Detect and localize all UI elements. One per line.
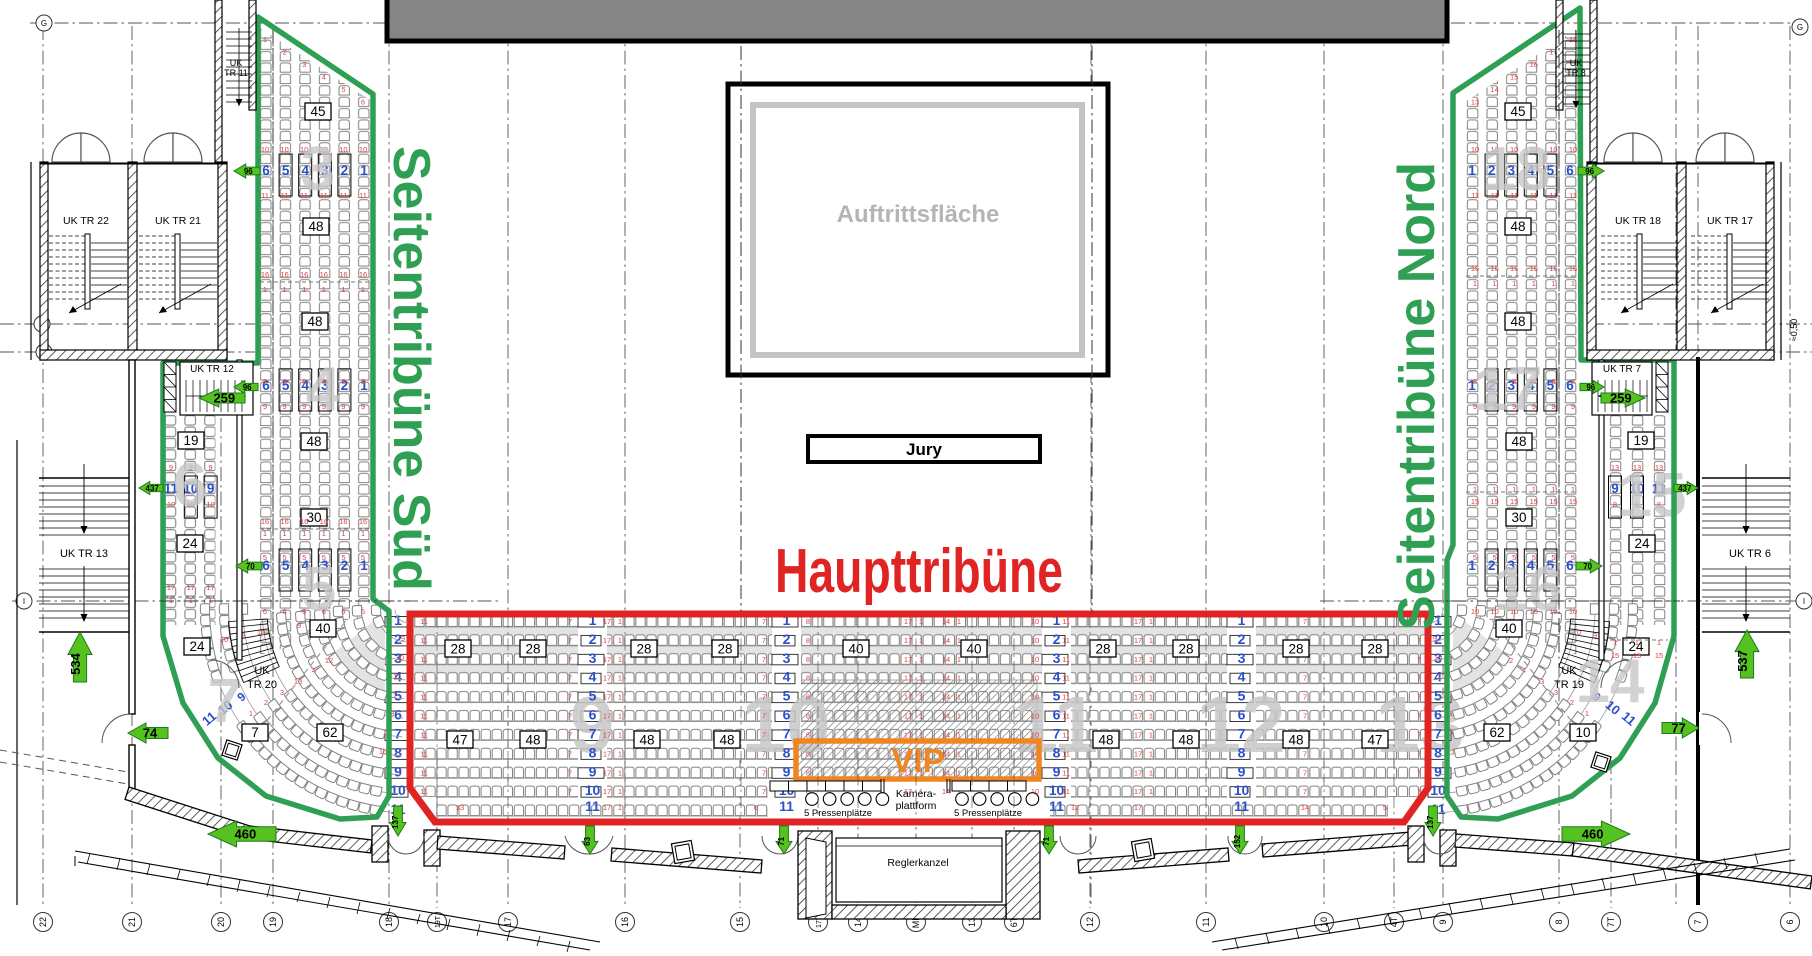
svg-text:70: 70: [246, 562, 255, 571]
svg-text:1: 1: [1473, 279, 1477, 288]
svg-text:11: 11: [1049, 798, 1064, 814]
svg-text:11: 11: [420, 768, 428, 777]
svg-text:UK: UK: [1570, 58, 1583, 68]
svg-text:6: 6: [341, 607, 345, 616]
svg-text:1: 1: [919, 617, 923, 626]
svg-text:UK TR 6: UK TR 6: [1729, 548, 1771, 560]
svg-text:19: 19: [268, 917, 278, 927]
svg-text:70: 70: [1583, 562, 1592, 571]
svg-text:48: 48: [306, 434, 321, 449]
svg-text:10: 10: [1430, 782, 1446, 798]
svg-text:16: 16: [261, 270, 269, 279]
svg-text:5: 5: [1383, 803, 1387, 812]
svg-text:9: 9: [361, 402, 365, 411]
svg-text:6: 6: [754, 803, 758, 812]
svg-text:1: 1: [341, 285, 345, 294]
svg-text:VIP: VIP: [891, 742, 944, 779]
svg-text:10: 10: [1234, 782, 1250, 798]
svg-text:1: 1: [302, 529, 306, 538]
svg-text:6: 6: [783, 707, 791, 723]
svg-text:1: 1: [618, 617, 622, 626]
svg-text:7: 7: [589, 725, 597, 741]
svg-text:19T: 19T: [435, 915, 442, 928]
svg-text:7: 7: [1303, 768, 1307, 777]
svg-text:63: 63: [583, 836, 592, 845]
svg-text:UK TR 7: UK TR 7: [1603, 364, 1642, 375]
svg-text:7: 7: [762, 674, 766, 683]
svg-text:17: 17: [603, 712, 611, 721]
svg-text:48: 48: [1511, 434, 1526, 449]
svg-text:7: 7: [394, 725, 402, 741]
svg-text:1: 1: [919, 693, 923, 702]
svg-text:19: 19: [183, 433, 198, 448]
svg-text:11: 11: [281, 191, 289, 200]
svg-text:9: 9: [209, 463, 213, 472]
svg-text:11: 11: [420, 655, 428, 664]
svg-text:11: 11: [359, 191, 367, 200]
svg-text:259: 259: [213, 391, 235, 406]
svg-text:11: 11: [1234, 798, 1249, 814]
svg-text:28: 28: [1095, 642, 1110, 657]
svg-text:1: 1: [361, 529, 365, 538]
svg-text:10: 10: [220, 635, 228, 644]
svg-text:152: 152: [1233, 834, 1242, 848]
svg-text:1: 1: [1532, 485, 1536, 494]
svg-text:10: 10: [1575, 725, 1590, 740]
svg-text:2: 2: [1053, 631, 1061, 647]
svg-text:13: 13: [294, 677, 302, 686]
svg-text:9: 9: [589, 763, 597, 779]
svg-text:1: 1: [919, 674, 923, 683]
svg-text:16: 16: [359, 517, 367, 526]
svg-text:9: 9: [1438, 919, 1448, 924]
svg-text:17: 17: [1134, 712, 1142, 721]
svg-text:10: 10: [1031, 674, 1039, 683]
svg-text:1: 1: [1512, 279, 1516, 288]
svg-text:534: 534: [68, 652, 83, 674]
svg-text:17: 17: [603, 803, 611, 812]
svg-text:9: 9: [1238, 763, 1246, 779]
svg-text:3: 3: [589, 650, 597, 666]
svg-text:7: 7: [762, 712, 766, 721]
svg-text:7: 7: [762, 787, 766, 796]
svg-text:7: 7: [1417, 636, 1421, 645]
svg-text:45: 45: [1510, 104, 1525, 119]
svg-text:1: 1: [283, 285, 287, 294]
svg-text:40: 40: [848, 642, 863, 657]
svg-text:11: 11: [1062, 655, 1070, 664]
svg-text:11: 11: [1550, 191, 1558, 200]
svg-text:6: 6: [263, 607, 267, 616]
svg-text:4: 4: [783, 669, 791, 685]
svg-text:5: 5: [283, 553, 287, 562]
svg-text:I: I: [1803, 597, 1805, 606]
svg-text:16: 16: [1530, 264, 1538, 273]
svg-text:8: 8: [1551, 377, 1555, 386]
svg-text:3: 3: [1053, 650, 1061, 666]
svg-text:9: 9: [1551, 402, 1555, 411]
svg-text:1: 1: [1149, 617, 1153, 626]
svg-text:14: 14: [942, 636, 950, 645]
svg-text:1: 1: [1613, 638, 1617, 647]
svg-text:4: 4: [589, 669, 597, 685]
svg-text:9: 9: [341, 402, 345, 411]
svg-text:16: 16: [1494, 555, 1563, 624]
svg-text:1: 1: [919, 655, 923, 664]
svg-text:1: 1: [1468, 163, 1476, 178]
svg-text:6: 6: [589, 707, 597, 723]
svg-text:8: 8: [806, 617, 810, 626]
svg-text:11: 11: [779, 798, 794, 814]
svg-text:10: 10: [1471, 145, 1479, 154]
svg-text:7: 7: [1417, 712, 1421, 721]
svg-text:13: 13: [456, 803, 464, 812]
svg-text:1: 1: [618, 730, 622, 739]
svg-text:17: 17: [904, 636, 912, 645]
svg-text:6: 6: [173, 451, 207, 520]
svg-text:14: 14: [1301, 803, 1309, 812]
svg-text:11: 11: [420, 636, 428, 645]
svg-text:6: 6: [1053, 707, 1061, 723]
svg-text:5 Pressenplätze: 5 Pressenplätze: [954, 808, 1022, 819]
svg-text:15: 15: [1549, 497, 1557, 506]
svg-text:17: 17: [1474, 355, 1543, 424]
svg-text:40: 40: [966, 642, 981, 657]
svg-text:16: 16: [1530, 60, 1538, 69]
svg-text:1: 1: [957, 674, 961, 683]
svg-text:11: 11: [1062, 712, 1070, 721]
svg-text:20: 20: [216, 917, 226, 927]
svg-text:30: 30: [1511, 510, 1526, 525]
svg-text:1: 1: [1149, 636, 1153, 645]
svg-text:17: 17: [603, 617, 611, 626]
svg-text:17: 17: [603, 693, 611, 702]
svg-text:77: 77: [1671, 721, 1685, 736]
svg-text:14: 14: [942, 712, 950, 721]
svg-text:16: 16: [320, 270, 328, 279]
svg-text:8: 8: [589, 744, 597, 760]
svg-text:3: 3: [1238, 650, 1246, 666]
svg-text:7: 7: [1417, 655, 1421, 664]
svg-text:UK TR 18: UK TR 18: [1615, 215, 1661, 227]
svg-text:22: 22: [38, 917, 48, 927]
svg-text:G: G: [41, 19, 47, 28]
svg-text:7: 7: [762, 730, 766, 739]
svg-text:UK: UK: [230, 58, 243, 68]
svg-text:14: 14: [1576, 647, 1645, 716]
svg-text:UK: UK: [254, 665, 270, 677]
svg-text:10: 10: [1569, 607, 1577, 616]
svg-text:28: 28: [450, 642, 465, 657]
svg-text:11: 11: [420, 749, 428, 758]
svg-text:3: 3: [302, 60, 306, 69]
svg-text:7: 7: [762, 749, 766, 758]
svg-text:10: 10: [280, 145, 288, 154]
svg-text:8: 8: [341, 377, 345, 386]
svg-text:7: 7: [762, 693, 766, 702]
svg-text:2: 2: [1570, 698, 1574, 707]
svg-text:11: 11: [420, 617, 428, 626]
svg-text:14: 14: [942, 693, 950, 702]
svg-text:1: 1: [302, 285, 306, 294]
svg-text:18: 18: [384, 917, 394, 927]
svg-text:7: 7: [568, 730, 572, 739]
svg-text:11: 11: [420, 712, 428, 721]
svg-text:1: 1: [919, 636, 923, 645]
svg-text:TR 11: TR 11: [224, 68, 248, 78]
svg-text:71: 71: [1042, 836, 1051, 845]
svg-text:15: 15: [1655, 651, 1663, 660]
svg-text:1: 1: [618, 693, 622, 702]
svg-text:11: 11: [585, 798, 600, 814]
svg-text:1: 1: [1149, 674, 1153, 683]
svg-text:7: 7: [1238, 725, 1246, 741]
svg-text:8: 8: [1571, 377, 1575, 386]
svg-text:48: 48: [1288, 733, 1303, 748]
svg-text:8: 8: [263, 377, 267, 386]
svg-text:1: 1: [1149, 749, 1153, 758]
svg-text:1: 1: [1571, 279, 1575, 288]
svg-text:2: 2: [589, 631, 597, 647]
svg-text:5: 5: [341, 85, 345, 94]
svg-text:1: 1: [1657, 638, 1661, 647]
svg-text:11: 11: [1062, 787, 1070, 796]
svg-text:11: 11: [1062, 617, 1070, 626]
svg-text:1: 1: [618, 749, 622, 758]
svg-text:2: 2: [341, 163, 349, 178]
svg-text:16: 16: [1510, 264, 1518, 273]
svg-text:11: 11: [261, 191, 269, 200]
svg-text:16: 16: [1490, 264, 1498, 273]
svg-text:7: 7: [1417, 749, 1421, 758]
svg-text:11: 11: [1471, 191, 1479, 200]
svg-text:8: 8: [1434, 744, 1442, 760]
svg-text:7: 7: [1434, 725, 1442, 741]
svg-text:17: 17: [187, 583, 195, 592]
svg-text:≈0,50: ≈0,50: [1789, 319, 1799, 341]
svg-text:11: 11: [1062, 693, 1070, 702]
svg-text:74: 74: [143, 726, 158, 741]
svg-text:7: 7: [1303, 693, 1307, 702]
svg-text:10: 10: [585, 782, 601, 798]
svg-text:9: 9: [207, 481, 215, 496]
svg-text:10: 10: [261, 145, 269, 154]
svg-text:17: 17: [1134, 768, 1142, 777]
svg-text:UK TR 17: UK TR 17: [1707, 215, 1753, 227]
svg-text:47: 47: [1367, 733, 1382, 748]
svg-text:11: 11: [1062, 636, 1070, 645]
svg-text:1: 1: [1149, 787, 1153, 796]
svg-text:96: 96: [243, 383, 252, 392]
svg-text:8: 8: [806, 712, 810, 721]
svg-text:10: 10: [359, 145, 367, 154]
svg-text:48: 48: [525, 733, 540, 748]
svg-text:28: 28: [1367, 642, 1382, 657]
svg-text:7: 7: [1417, 768, 1421, 777]
svg-text:28: 28: [1178, 642, 1193, 657]
svg-text:10: 10: [1031, 730, 1039, 739]
svg-text:71: 71: [777, 836, 786, 845]
svg-text:17: 17: [603, 655, 611, 664]
svg-text:7: 7: [568, 693, 572, 702]
svg-text:48: 48: [1178, 733, 1193, 748]
svg-text:11: 11: [420, 787, 428, 796]
svg-text:15: 15: [1510, 73, 1518, 82]
svg-text:17: 17: [1134, 803, 1142, 812]
svg-text:1: 1: [1149, 730, 1153, 739]
svg-text:11: 11: [420, 674, 428, 683]
svg-text:15: 15: [379, 747, 387, 756]
svg-text:5: 5: [282, 163, 290, 178]
svg-text:16: 16: [261, 517, 269, 526]
svg-text:15: 15: [1569, 497, 1577, 506]
svg-text:1: 1: [1635, 638, 1639, 647]
svg-text:1: 1: [341, 529, 345, 538]
svg-text:1: 1: [618, 674, 622, 683]
svg-text:18: 18: [1482, 135, 1551, 204]
svg-text:UK TR 21: UK TR 21: [155, 215, 201, 227]
svg-text:17: 17: [206, 583, 214, 592]
svg-text:7: 7: [568, 655, 572, 664]
svg-text:5: 5: [783, 688, 791, 704]
svg-text:10: 10: [257, 628, 265, 637]
svg-text:6: 6: [1238, 707, 1246, 723]
svg-text:11: 11: [420, 693, 428, 702]
svg-text:6: 6: [1434, 707, 1442, 723]
svg-text:15: 15: [735, 917, 745, 927]
svg-text:96: 96: [244, 167, 253, 176]
svg-text:17: 17: [603, 787, 611, 796]
svg-text:9: 9: [401, 634, 405, 643]
svg-text:24: 24: [1634, 536, 1650, 551]
svg-text:5: 5: [589, 688, 597, 704]
svg-text:7T: 7T: [1606, 916, 1616, 927]
svg-text:11: 11: [393, 672, 401, 681]
svg-text:12: 12: [1071, 803, 1079, 812]
svg-text:7: 7: [762, 655, 766, 664]
svg-text:1: 1: [618, 712, 622, 721]
svg-text:5 Pressenplätze: 5 Pressenplätze: [804, 808, 872, 819]
svg-text:7: 7: [568, 768, 572, 777]
svg-text:537: 537: [1735, 650, 1750, 672]
svg-text:1: 1: [283, 529, 287, 538]
svg-text:28: 28: [636, 642, 651, 657]
svg-text:7: 7: [1693, 919, 1703, 924]
svg-text:1: 1: [1532, 279, 1536, 288]
svg-text:15: 15: [1471, 497, 1479, 506]
svg-text:24: 24: [182, 536, 198, 551]
svg-text:UK TR 22: UK TR 22: [63, 215, 109, 227]
svg-text:Haupttribüne: Haupttribüne: [775, 537, 1063, 606]
svg-text:7: 7: [568, 787, 572, 796]
svg-text:14: 14: [942, 617, 950, 626]
svg-text:28: 28: [525, 642, 540, 657]
svg-text:437: 437: [146, 484, 160, 493]
svg-text:48: 48: [1510, 219, 1525, 234]
svg-text:9: 9: [1053, 763, 1061, 779]
svg-text:7: 7: [1417, 693, 1421, 702]
svg-text:7: 7: [1053, 725, 1061, 741]
svg-text:11: 11: [1062, 768, 1070, 777]
svg-text:7: 7: [762, 617, 766, 626]
svg-text:96: 96: [1585, 167, 1594, 176]
svg-text:9: 9: [263, 402, 267, 411]
svg-text:10: 10: [1031, 712, 1039, 721]
svg-text:137: 137: [1426, 815, 1435, 829]
svg-text:16: 16: [1569, 264, 1577, 273]
svg-text:5: 5: [1473, 553, 1477, 562]
svg-text:9: 9: [783, 763, 791, 779]
svg-text:28: 28: [1288, 642, 1303, 657]
svg-text:11: 11: [1062, 749, 1070, 758]
svg-text:4: 4: [312, 666, 316, 675]
svg-text:48: 48: [307, 314, 322, 329]
svg-text:1: 1: [1473, 485, 1477, 494]
svg-text:7: 7: [568, 674, 572, 683]
svg-text:1: 1: [1149, 655, 1153, 664]
svg-text:10: 10: [390, 782, 406, 798]
svg-text:Jury: Jury: [906, 440, 942, 459]
svg-text:7: 7: [1417, 674, 1421, 683]
svg-text:Seitentribüne Nord: Seitentribüne Nord: [1388, 162, 1446, 630]
svg-text:17: 17: [1134, 693, 1142, 702]
svg-text:16: 16: [1471, 264, 1479, 273]
svg-text:28: 28: [717, 642, 732, 657]
svg-text:8: 8: [806, 674, 810, 683]
svg-text:1: 1: [1551, 485, 1555, 494]
svg-text:1: 1: [957, 693, 961, 702]
svg-text:7: 7: [1303, 712, 1307, 721]
svg-text:10: 10: [339, 145, 347, 154]
svg-text:17: 17: [1134, 787, 1142, 796]
svg-text:1: 1: [618, 803, 622, 812]
svg-text:4: 4: [306, 355, 341, 424]
svg-text:16: 16: [280, 517, 288, 526]
svg-text:11: 11: [420, 730, 428, 739]
svg-text:17: 17: [1134, 674, 1142, 683]
svg-text:8: 8: [1053, 744, 1061, 760]
svg-text:17: 17: [603, 768, 611, 777]
svg-text:1: 1: [1512, 485, 1516, 494]
svg-text:5: 5: [263, 553, 267, 562]
svg-text:9: 9: [297, 621, 301, 630]
svg-text:7: 7: [568, 636, 572, 645]
svg-text:16: 16: [280, 270, 288, 279]
svg-text:7: 7: [1303, 617, 1307, 626]
svg-text:12: 12: [325, 656, 333, 665]
svg-text:10: 10: [1031, 636, 1039, 645]
svg-text:Auftrittsfläche: Auftrittsfläche: [837, 201, 1000, 228]
svg-text:6: 6: [1566, 163, 1574, 178]
svg-text:137: 137: [391, 815, 400, 829]
svg-text:1: 1: [263, 529, 267, 538]
svg-text:96: 96: [1586, 383, 1595, 392]
svg-text:10: 10: [206, 500, 214, 509]
svg-text:UK TR 12: UK TR 12: [190, 364, 234, 375]
svg-text:7: 7: [1303, 749, 1307, 758]
svg-text:8: 8: [361, 377, 365, 386]
svg-text:10: 10: [1569, 145, 1577, 154]
svg-text:21: 21: [127, 917, 137, 927]
svg-text:17: 17: [603, 636, 611, 645]
svg-text:17: 17: [904, 655, 912, 664]
svg-text:2: 2: [783, 631, 791, 647]
svg-text:47: 47: [452, 733, 467, 748]
svg-text:1: 1: [957, 617, 961, 626]
svg-text:7: 7: [568, 617, 572, 626]
svg-text:2: 2: [264, 698, 268, 707]
svg-text:9: 9: [394, 763, 402, 779]
